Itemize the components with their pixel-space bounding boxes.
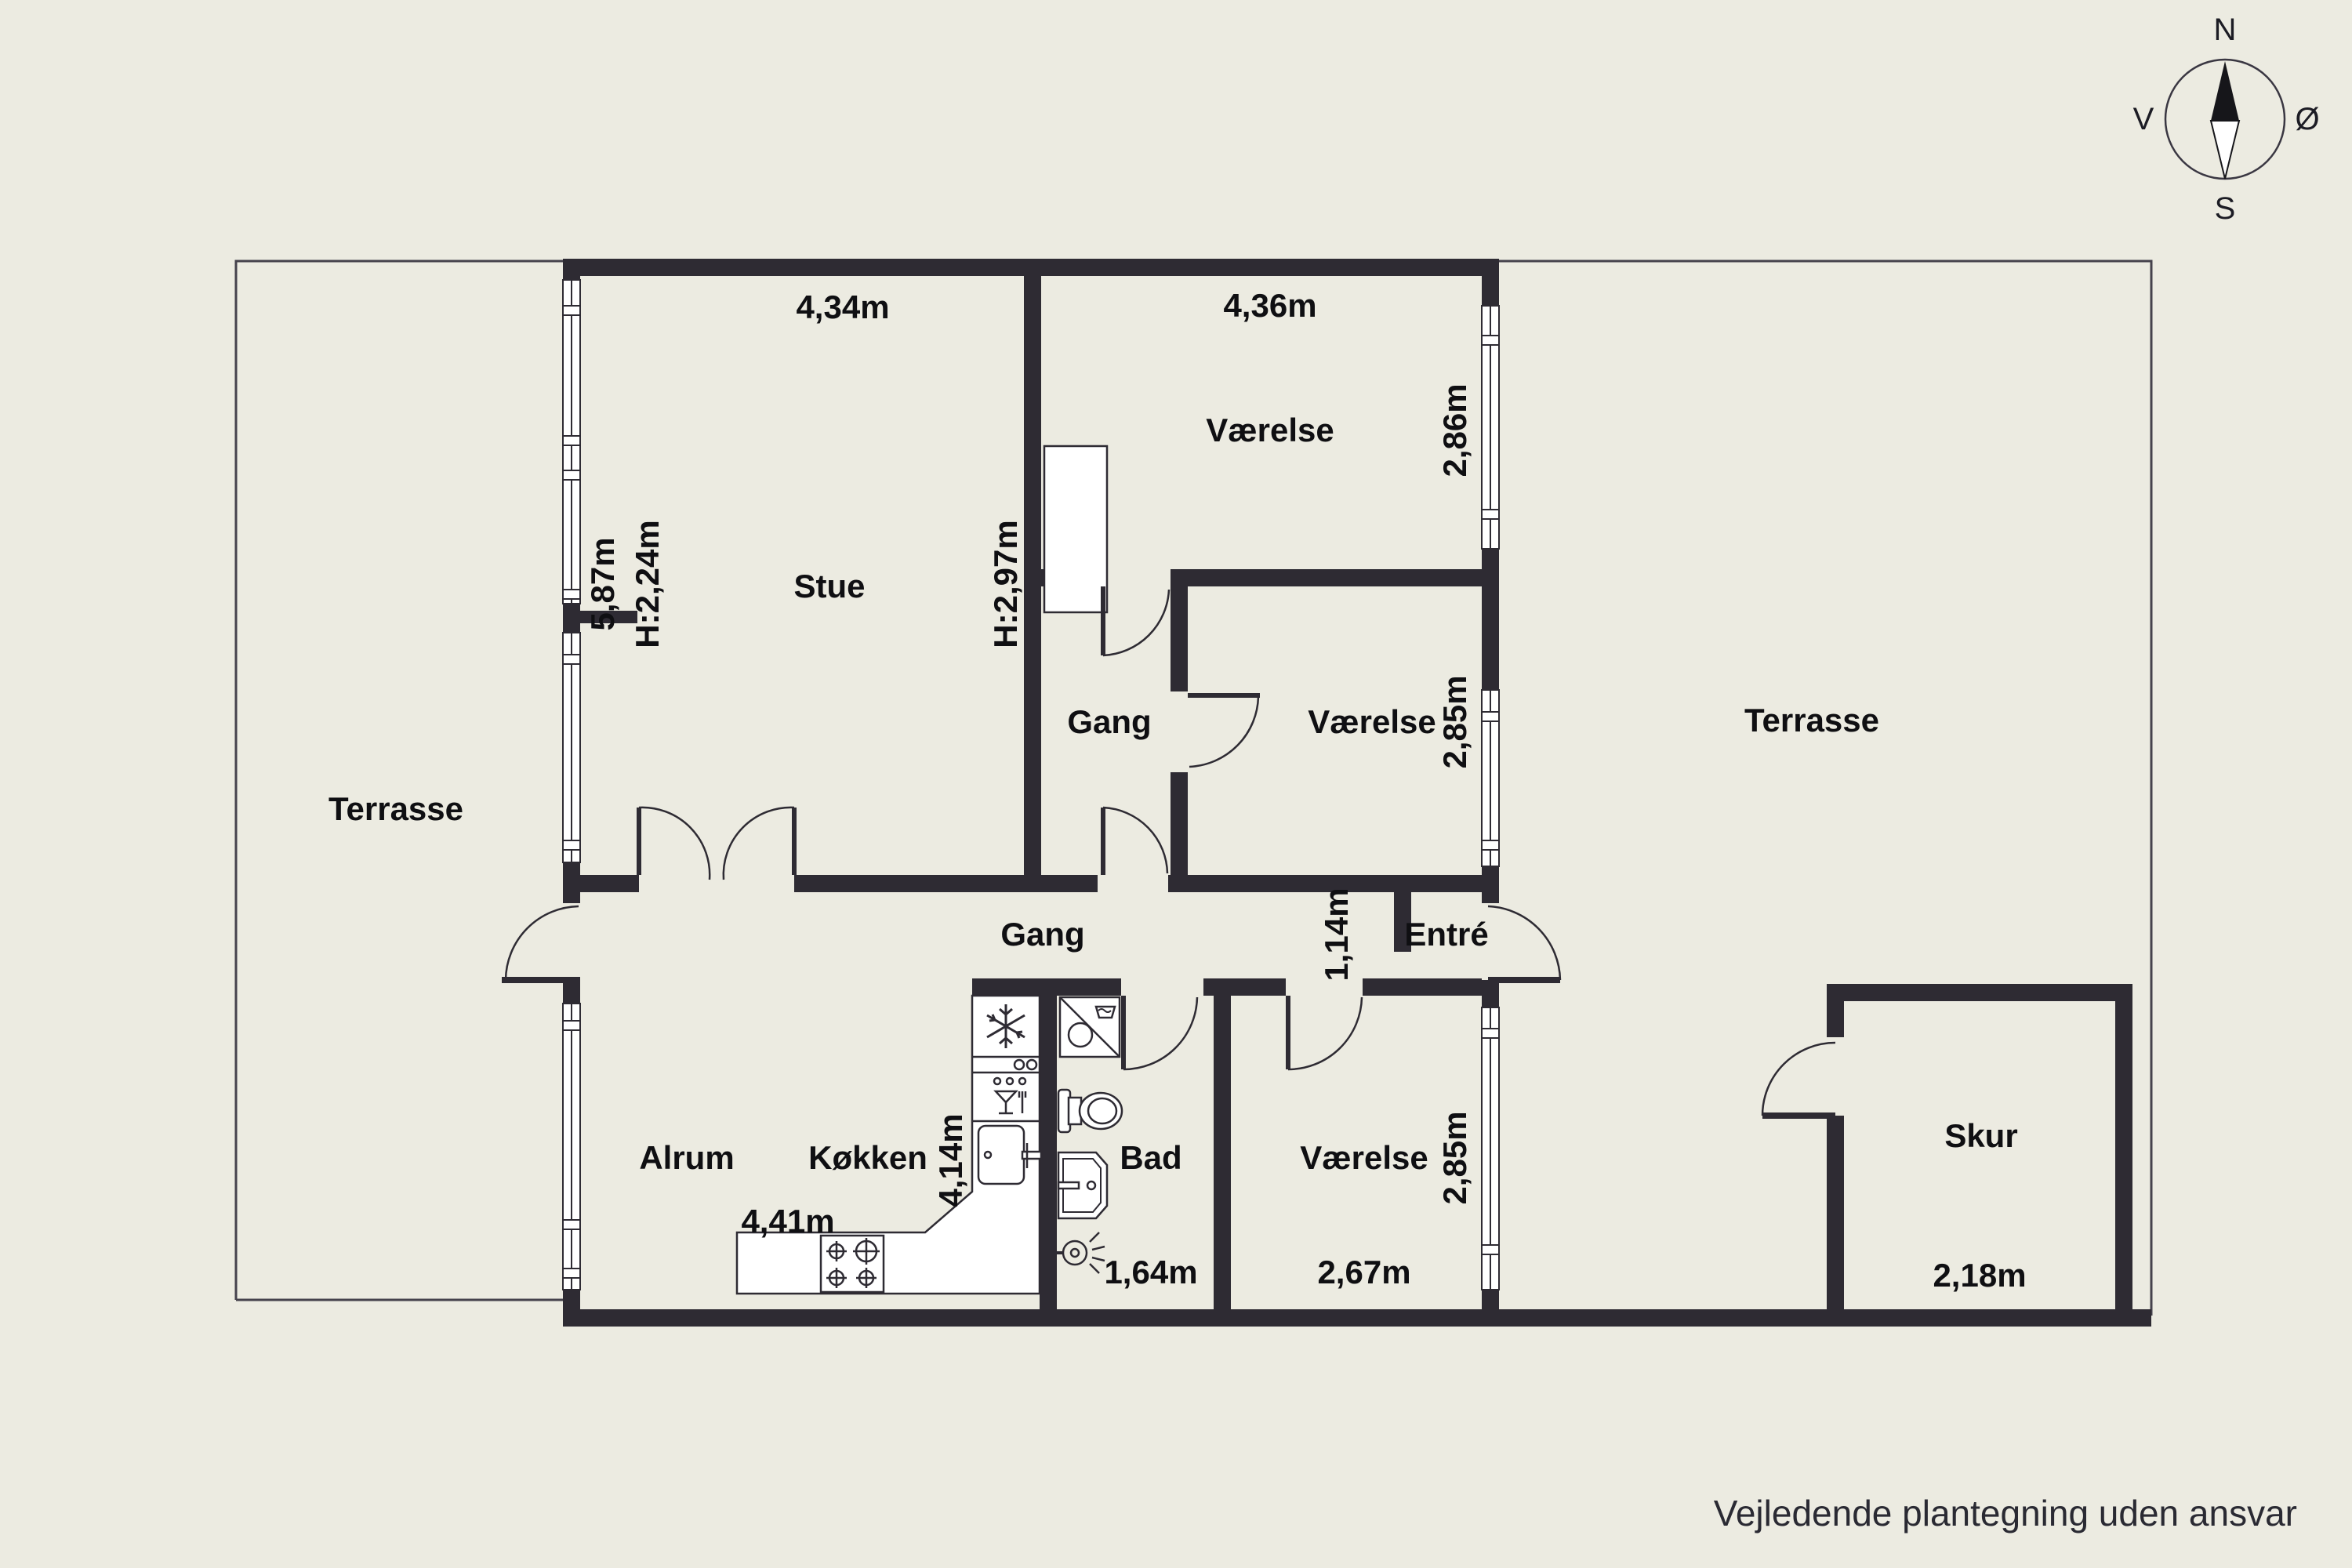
- bathroom-sink-icon: [1058, 1152, 1107, 1218]
- terrace-door-arc: [506, 906, 579, 980]
- dim-label-vaerelse-mid-depth: 2,85m: [1439, 675, 1472, 768]
- room-label-koekken: Køkken: [808, 1142, 927, 1174]
- gang-top-door-leaf: [1101, 586, 1105, 655]
- window-vaerelse-mid-right: [1482, 690, 1499, 866]
- room-label-gang-lower: Gang: [1000, 918, 1084, 951]
- compass-needle-south: [2211, 121, 2239, 179]
- dim-label-stue-ceiling2: H:2,97m: [989, 520, 1022, 648]
- wall-left-seg: [563, 604, 580, 633]
- dim-label-alrum-width: 4,41m: [741, 1205, 834, 1238]
- stue-double-door-arc: [724, 808, 794, 880]
- wall-right-seg: [1482, 549, 1499, 690]
- wall-stue-right: [1024, 276, 1041, 892]
- dim-label-vaerelse-bottom-width: 2,67m: [1317, 1256, 1410, 1289]
- stue-double-door-arc: [639, 808, 710, 880]
- gang-lower-door-leaf: [1101, 808, 1105, 875]
- entry-door-leaf: [1488, 977, 1560, 983]
- doors: [502, 586, 1835, 1119]
- disclaimer-text: Vejledende plantegning uden ansvar: [1714, 1492, 2297, 1534]
- washing-machine-icon: [1060, 997, 1120, 1057]
- wall-corridor-bottom: [1363, 978, 1482, 996]
- room-label-terrasse-left: Terrasse: [328, 793, 463, 826]
- dim-label-stue-width: 4,34m: [796, 291, 889, 324]
- room-label-bad: Bad: [1120, 1142, 1181, 1174]
- toilet-icon: [1058, 1090, 1122, 1132]
- bad-door-arc: [1123, 997, 1197, 1069]
- compass-label-west: V: [2133, 103, 2154, 135]
- wall-koekken-bad: [1040, 978, 1057, 1309]
- skur-door-arc: [1762, 1043, 1835, 1116]
- dim-label-stue-ceiling: H:2,24m: [631, 520, 664, 648]
- wall-corridor-bottom: [1203, 978, 1286, 996]
- wall-skur-left: [1827, 1116, 1844, 1309]
- dim-label-koekken-depth: 4,14m: [935, 1113, 967, 1207]
- compass-label-south: S: [2215, 193, 2236, 224]
- vaerelse-mid-door-leaf: [1188, 693, 1260, 698]
- wall-gang-vaerelse: [1171, 772, 1188, 892]
- dim-label-skur-width: 2,18m: [1933, 1259, 2026, 1292]
- wall-skur-left: [1827, 1001, 1844, 1037]
- window-stue-left: [563, 280, 580, 604]
- floorplan-drawing: [0, 0, 2352, 1568]
- skur-door-leaf: [1762, 1112, 1835, 1119]
- stove-icon: [821, 1236, 884, 1292]
- entry-door-arc: [1488, 906, 1560, 980]
- dim-label-vaerelse-top-depth: 2,86m: [1439, 383, 1472, 477]
- wall-left-seg: [563, 980, 580, 1004]
- room-label-vaerelse-mid: Værelse: [1308, 706, 1436, 739]
- wall-gang-vaerelse: [1171, 586, 1188, 691]
- room-label-skur: Skur: [1944, 1120, 2017, 1152]
- wall-right-seg: [1482, 259, 1499, 306]
- wall-right-seg: [1482, 866, 1499, 903]
- wall-right-seg: [1482, 980, 1499, 1007]
- room-label-vaerelse-bottom: Værelse: [1300, 1142, 1428, 1174]
- compass-label-east: Ø: [2295, 103, 2319, 135]
- room-label-alrum: Alrum: [639, 1142, 734, 1174]
- window-gang-left: [563, 633, 580, 862]
- bathroom-fixtures: [1057, 997, 1122, 1273]
- vaerelse-mid-door-arc: [1189, 696, 1258, 767]
- dim-label-corridor-width: 1,14m: [1320, 887, 1353, 981]
- vaerelse-bottom-door-arc: [1288, 997, 1362, 1069]
- wall-bad-vaerelse: [1214, 996, 1231, 1309]
- compass-needle-north: [2211, 61, 2239, 121]
- wall-corridor-top: [580, 875, 639, 892]
- room-label-entre: Entré: [1404, 918, 1488, 951]
- room-label-gang-upper: Gang: [1067, 706, 1151, 739]
- dim-label-vaerelse-bottom-depth: 2,85m: [1439, 1111, 1472, 1204]
- room-label-stue: Stue: [793, 570, 865, 603]
- dim-label-vaerelse-top-width: 4,36m: [1223, 289, 1316, 322]
- wall-corridor-top: [794, 875, 1098, 892]
- wall-skur-top: [1827, 984, 2132, 1001]
- room-label-vaerelse-top: Værelse: [1206, 414, 1334, 447]
- terrace-outline: [236, 261, 2151, 1316]
- wall-skur-right: [2115, 1001, 2132, 1309]
- wall-bottom: [564, 1309, 2151, 1327]
- shower-icon: [1057, 1232, 1105, 1273]
- window-vaerelse-bottom-right: [1482, 1007, 1499, 1290]
- terrace-door-leaf: [502, 977, 580, 983]
- wall-vaerelse-top-bottom: [1171, 569, 1482, 586]
- window-vaerelse-top-right: [1482, 306, 1499, 549]
- dim-label-stue-depth: 5,87m: [586, 537, 619, 630]
- gang-top-door-arc: [1103, 590, 1169, 655]
- stue-double-door-leaf: [792, 808, 797, 875]
- bad-door-leaf: [1121, 996, 1126, 1069]
- compass: [2165, 60, 2285, 179]
- wall-left-seg: [563, 862, 580, 903]
- floorplan-page: { "labels": { "stue": "Stue", "vaerelse_…: [0, 0, 2352, 1568]
- dim-label-bad-width: 1,64m: [1104, 1256, 1197, 1289]
- wall-left-seg: [563, 259, 580, 280]
- window-alrum-left: [563, 1004, 580, 1290]
- vaerelse-bottom-door-leaf: [1286, 996, 1290, 1069]
- stue-double-door-leaf: [637, 808, 641, 875]
- room-label-terrasse-right: Terrasse: [1744, 704, 1879, 737]
- gang-lower-door-arc: [1103, 808, 1167, 873]
- closet: [1044, 446, 1107, 612]
- wall-top: [564, 259, 1499, 276]
- compass-label-north: N: [2214, 14, 2237, 45]
